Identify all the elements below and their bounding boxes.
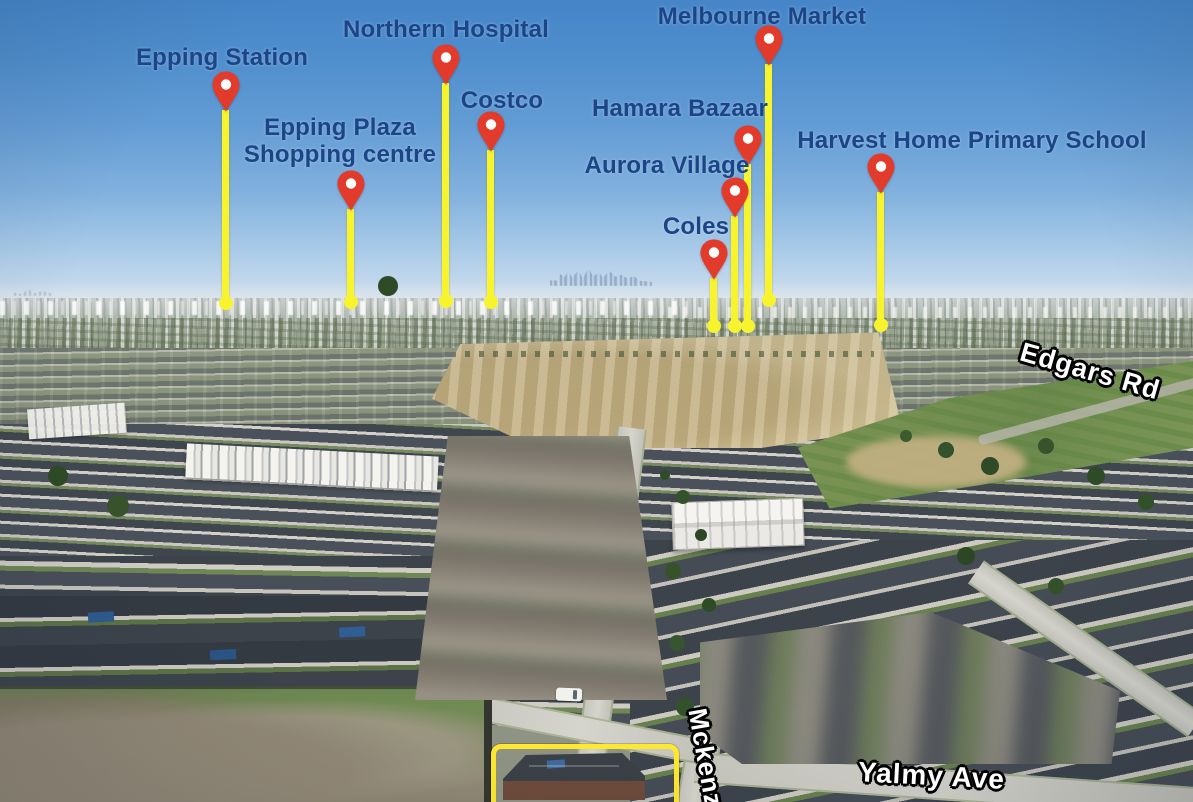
pin-label: Aurora Village (584, 152, 749, 179)
pin-label: Melbourne Market (658, 3, 867, 30)
pin-label: Epping Station (136, 44, 308, 71)
property-highlight-box (491, 744, 679, 802)
pin-line (347, 209, 354, 303)
pin-line (442, 83, 449, 302)
pin-label: Coles (663, 213, 729, 240)
annotated-aerial-photo: Epping Station Epping Plaza Shopping cen… (0, 0, 1193, 802)
pin-label: Harvest Home Primary School (797, 127, 1147, 154)
apartment-building (671, 498, 805, 551)
dry-paddock (432, 330, 902, 448)
pin-line (877, 192, 884, 326)
vacant-lot (0, 686, 492, 802)
map-pin-icon (866, 152, 896, 195)
pin-label: Hamara Bazaar (592, 95, 768, 122)
pin-line (710, 278, 717, 327)
street-trees (660, 470, 670, 480)
pin-label: Costco (461, 87, 544, 114)
map-pin-icon (431, 43, 461, 86)
map-pin-icon (754, 24, 784, 67)
white-van (556, 688, 582, 702)
map-pin-icon (336, 169, 366, 212)
map-pin-icon (699, 238, 729, 281)
pin-line (222, 110, 229, 304)
map-pin-icon (211, 70, 241, 113)
park-trees (900, 430, 912, 442)
pin-line (731, 216, 738, 327)
map-pin-icon (476, 110, 506, 153)
pin-label: Northern Hospital (343, 16, 549, 43)
privacy-blur-region-center (415, 436, 667, 700)
pin-label: Epping Plaza Shopping centre (244, 114, 436, 168)
pin-line (487, 150, 494, 303)
solar-panels (88, 611, 114, 622)
